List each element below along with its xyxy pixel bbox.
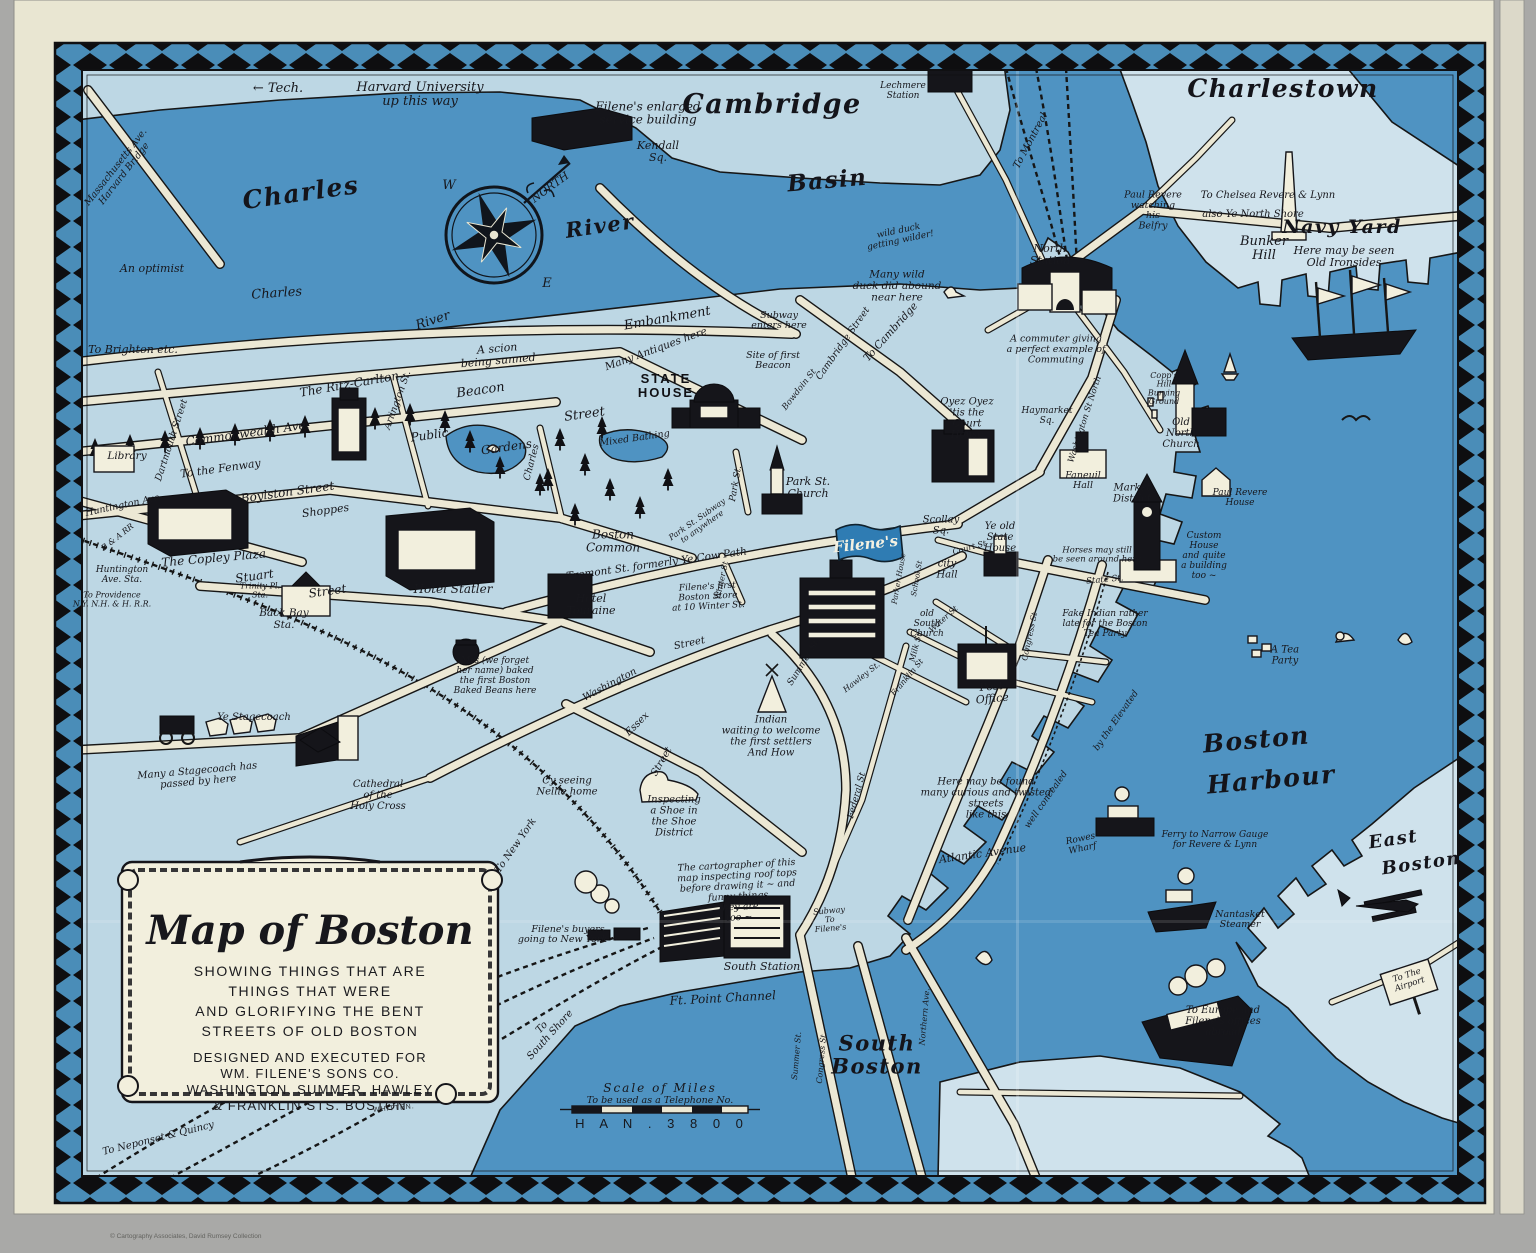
map-label: A TeaParty [1270, 645, 1299, 667]
map-label: Mrs (we forgether name) bakedthe first B… [453, 655, 537, 696]
scale-phone-number: H A N . 3 8 0 0 [575, 1116, 749, 1131]
map-label: An optimist [119, 262, 185, 275]
hotel-statler-icon [386, 508, 494, 590]
map-label: Library [106, 450, 147, 462]
map-label: To Chelsea Revere & Lynn [1201, 190, 1335, 201]
map-label: Cy seeingNellie home [535, 776, 597, 798]
map-label: Copp'sHillBuryingGround [1147, 371, 1180, 406]
map-label: E [541, 276, 552, 291]
map-label: W [442, 178, 457, 193]
map-label: ← Tech. [253, 81, 303, 96]
map-label: Inspectinga Shoe inthe ShoeDistrict [646, 795, 701, 839]
map-label: Horses may stillbe seen around here [1053, 545, 1142, 564]
scale-title: Scale of Miles [603, 1081, 717, 1095]
map-label: Ferry to Narrow Gaugefor Revere & Lynn [1161, 830, 1269, 850]
cartouche-subtitle: STREETS OF OLD BOSTON [202, 1023, 419, 1039]
map-label: To ProvidenceN.Y. N.H. & H. R.R. [72, 591, 151, 609]
map-label: SouthBoston [830, 1030, 923, 1078]
cartouche-credit: DESIGNED AND EXECUTED FOR [193, 1050, 427, 1065]
map-label: BostonCommon [586, 527, 640, 554]
scanned-pictorial-map: Map of Boston SHOWING THINGS THAT ARE TH… [0, 0, 1536, 1253]
map-label: Filene's buyersgoing to New York → [518, 924, 618, 945]
map-label: NorthStation [1030, 242, 1070, 267]
ritz-carlton-icon [332, 388, 366, 460]
collection-credit: © Cartography Associates, David Rumsey C… [110, 1232, 262, 1240]
cartouche-subtitle: AND GLORIFYING THE BENT [195, 1003, 424, 1019]
scale-subtitle: To be used as a Telephone No. [587, 1095, 733, 1106]
cartouche: Map of Boston SHOWING THINGS THAT ARE TH… [118, 857, 502, 1114]
map-label: NantasketSteamer [1214, 909, 1265, 930]
map-label: Hotel Statler [413, 582, 494, 596]
paper-fold-edge [1500, 0, 1524, 1214]
map-label: STATEHOUSE [638, 371, 694, 400]
cartouche-subtitle: THINGS THAT WERE [228, 983, 391, 999]
cartouche-credit: WASHINGTON, SUMMER, HAWLEY [187, 1082, 434, 1097]
map-label: Ye oldStateHouse [983, 521, 1016, 554]
map-label: Filene's firstBoston Storeat 10 Winter S… [671, 580, 745, 614]
fold-crease-vertical [1016, 70, 1019, 1176]
map-canvas: Map of Boston SHOWING THINGS THAT ARE TH… [0, 0, 1536, 1253]
copley-plaza-icon [148, 490, 248, 556]
map-label: HuntingtonAve. Sta. [95, 565, 149, 585]
cartouche-subtitle: SHOWING THINGS THAT ARE [194, 963, 427, 979]
lechmere-station-icon [928, 70, 972, 92]
map-label: cityHall [935, 559, 957, 581]
map-label: Cambridge [682, 89, 861, 120]
map-label: Charlestown [1187, 74, 1378, 103]
cartouche-title: Map of Boston [144, 907, 473, 954]
map-label: Here may be seenOld Ironsides [1293, 244, 1395, 269]
map-label: Ye Stagecoach [217, 712, 291, 723]
scale-bar [560, 1106, 760, 1113]
map-label: MarketDistrict [1112, 483, 1152, 505]
map-label: Navy Yard [1281, 216, 1402, 238]
map-label: Park St.Church [785, 475, 830, 500]
map-label: To Brighton etc. [88, 343, 178, 356]
map-label: LechmereStation [879, 81, 926, 101]
map-label: South Station [724, 960, 800, 973]
cartouche-credit: WM. FILENE'S SONS CO. [220, 1066, 399, 1081]
